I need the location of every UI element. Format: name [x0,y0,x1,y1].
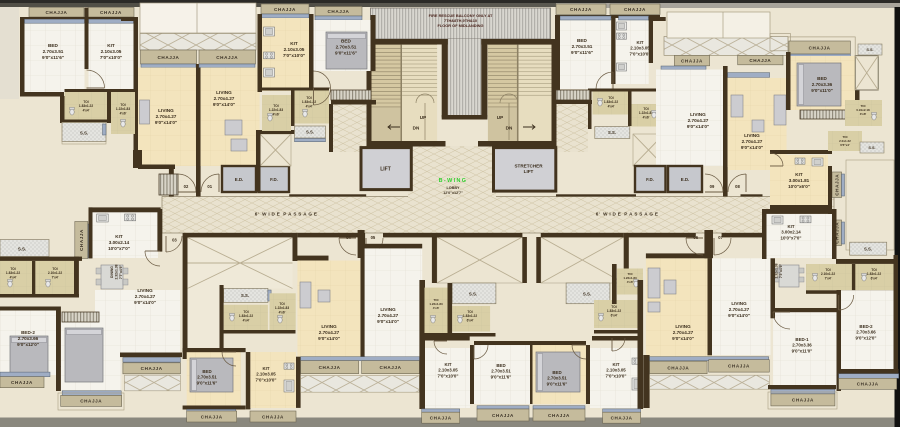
svg-text:7'0"x10'0": 7'0"x10'0" [630,51,651,56]
svg-text:S.S.: S.S. [608,130,616,135]
svg-text:2.70x3.51: 2.70x3.51 [336,45,357,50]
svg-text:LIVING: LIVING [321,324,337,329]
svg-text:4'x6': 4'x6' [643,115,650,119]
svg-text:2.70x4.27: 2.70x4.27 [673,330,694,335]
svg-text:BED: BED [577,38,588,43]
svg-text:STRETCHER: STRETCHER [514,164,543,169]
svg-text:2.70x3.36: 2.70x3.36 [812,82,833,87]
svg-text:S.S.: S.S. [868,146,875,150]
svg-text:2.70x4.27: 2.70x4.27 [156,114,177,119]
svg-text:CHAJJA: CHAJJA [141,366,163,371]
svg-text:CHAJJA: CHAJJA [667,365,689,370]
svg-text:4'x6': 4'x6' [433,306,440,310]
svg-text:08: 08 [735,184,740,189]
svg-text:2.70x4.27: 2.70x4.27 [729,307,750,312]
svg-text:CHAJJA: CHAJJA [158,55,180,60]
svg-text:CHAJJA: CHAJJA [792,398,814,403]
svg-text:9'0"x14'0": 9'0"x14'0" [134,300,156,305]
svg-text:9'0"x11'6": 9'0"x11'6" [491,374,512,379]
svg-text:3.00x2.14: 3.00x2.14 [109,240,130,245]
svg-text:CHAJJA: CHAJJA [492,413,514,418]
svg-text:4'x6': 4'x6' [273,112,280,116]
svg-text:LIVING: LIVING [380,307,396,312]
svg-text:S.S.: S.S. [469,292,477,297]
svg-text:2.70x4.27: 2.70x4.27 [742,139,763,144]
svg-text:9'0"x11'6": 9'0"x11'6" [197,380,218,385]
svg-text:CHAJJA: CHAJJA [80,399,102,404]
svg-text:2.10x3.05: 2.10x3.05 [606,368,626,373]
svg-text:B-WING: B-WING [439,178,468,184]
svg-text:4'x6': 4'x6' [627,280,634,284]
svg-text:S.S.: S.S. [241,293,249,298]
svg-text:2.70x4.27: 2.70x4.27 [688,118,709,123]
svg-text:KIT: KIT [612,362,619,367]
svg-text:2.10x3.05: 2.10x3.05 [284,47,305,52]
svg-text:LOBBY: LOBBY [447,186,460,190]
svg-text:KIT: KIT [107,43,115,48]
svg-text:9'0"x11'6": 9'0"x11'6" [42,55,64,60]
svg-text:CHAJJA: CHAJJA [100,10,122,15]
svg-text:BED: BED [48,43,59,48]
svg-text:2.70x3.66: 2.70x3.66 [18,336,39,341]
svg-text:2.70x3.51: 2.70x3.51 [197,375,217,380]
svg-text:CHAJJA: CHAJJA [611,416,633,421]
svg-text:LIFT: LIFT [524,169,534,174]
svg-text:9'0"x11'0": 9'0"x11'0" [792,348,813,353]
svg-text:7'0"x10'0": 7'0"x10'0" [283,53,305,58]
svg-text:3.00x1.81: 3.00x1.81 [789,178,810,183]
svg-text:E.D.: E.D. [235,177,244,182]
svg-text:2.10x3.05: 2.10x3.05 [256,372,276,377]
svg-text:LIVING: LIVING [690,112,706,117]
svg-text:07: 07 [718,235,723,240]
svg-text:CHAJJA: CHAJJA [681,58,703,63]
svg-text:S.S.: S.S. [80,131,88,136]
svg-text:BED-1: BED-1 [795,337,809,342]
svg-text:2.10x3.05: 2.10x3.05 [630,46,650,51]
svg-text:05: 05 [371,235,376,240]
svg-text:CHAJJA: CHAJJA [328,9,350,14]
svg-text:7'0"x10'0": 7'0"x10'0" [100,55,122,60]
svg-text:10'0"x7'0": 10'0"x7'0" [108,246,130,251]
svg-text:4'x4': 4'x4' [83,108,90,112]
svg-text:LIVING: LIVING [744,133,760,138]
svg-text:2.70x3.51: 2.70x3.51 [572,44,593,49]
svg-text:9'0"x11'6": 9'0"x11'6" [547,381,568,386]
svg-text:LIVING: LIVING [675,324,691,329]
svg-text:CHAJJA: CHAJJA [274,7,296,12]
svg-text:BED: BED [341,39,352,44]
svg-text:9'0"x14'0": 9'0"x14'0" [672,336,694,341]
svg-text:2.70x4.27: 2.70x4.27 [214,96,235,101]
svg-text:KIT: KIT [636,40,643,45]
svg-text:CHAJJA: CHAJJA [570,7,592,12]
svg-text:S.S.: S.S. [18,247,26,252]
svg-text:9'0"x14'0": 9'0"x14'0" [741,145,763,150]
svg-text:KIT: KIT [290,41,298,46]
svg-text:BED: BED [817,76,827,81]
svg-text:10'0"x7'0": 10'0"x7'0" [781,235,802,240]
svg-text:F.D.: F.D. [646,177,654,182]
svg-text:2.70x4.27: 2.70x4.27 [378,313,399,318]
svg-text:4'x6': 4'x6' [279,310,286,314]
svg-text:DN: DN [506,126,513,131]
svg-text:CHAJJA: CHAJJA [79,229,84,251]
svg-text:CHAJJA: CHAJJA [201,414,223,419]
svg-text:4'x6': 4'x6' [120,111,127,115]
svg-text:6'x4': 6'x4' [611,313,618,317]
svg-text:03: 03 [172,238,177,243]
svg-text:2.70x4.27: 2.70x4.27 [135,294,156,299]
svg-text:6' W I D E P A S S A G E: 6' W I D E P A S S A G E [255,212,318,217]
svg-text:KIT: KIT [787,224,794,229]
svg-text:LIVING: LIVING [216,90,232,95]
svg-text:CHAJJA: CHAJJA [430,416,452,421]
svg-text:KIT: KIT [444,362,451,367]
svg-text:CHAJJA: CHAJJA [46,10,68,15]
svg-text:DN: DN [413,126,420,131]
svg-text:BED: BED [202,369,211,374]
svg-text:BED: BED [552,370,561,375]
svg-text:CHAJJA: CHAJJA [548,413,570,418]
svg-text:9'0"x14'0": 9'0"x14'0" [728,313,750,318]
svg-text:9'0"x11'6": 9'0"x11'6" [571,50,593,55]
svg-text:BED-2: BED-2 [21,330,35,335]
svg-text:4'x4': 4'x4' [243,318,250,322]
svg-text:12'0"x12'7": 12'0"x12'7" [443,191,463,195]
svg-text:7'x4': 7'x4' [52,275,59,279]
svg-text:CHAJJA: CHAJJA [728,364,750,369]
svg-text:LIVING: LIVING [137,288,153,293]
svg-text:F.D.: F.D. [270,177,278,182]
svg-text:7'0"x10'0": 7'0"x10'0" [438,373,459,378]
svg-text:CHAJJA: CHAJJA [319,365,341,370]
svg-text:6'x4': 6'x4' [871,276,878,280]
svg-text:CHAJJA: CHAJJA [857,382,879,387]
svg-text:2.32x1.38: 2.32x1.38 [114,264,118,279]
svg-text:LIVING: LIVING [731,301,747,306]
svg-text:6' W I D E P A S S A G E: 6' W I D E P A S S A G E [596,212,659,217]
svg-text:CHAJJA: CHAJJA [624,7,646,12]
svg-text:7'0"x10'0": 7'0"x10'0" [606,373,627,378]
svg-text:9'0"x12'0": 9'0"x12'0" [17,342,39,347]
svg-text:9'0"x14'0": 9'0"x14'0" [213,102,235,107]
svg-text:3.00x2.14: 3.00x2.14 [781,230,801,235]
svg-text:2.10x3.05: 2.10x3.05 [101,49,122,54]
svg-text:04: 04 [346,235,351,240]
svg-text:2.10x3.05: 2.10x3.05 [438,368,458,373]
svg-text:4'x4': 4'x4' [10,275,17,279]
svg-text:CHAJJA: CHAJJA [380,365,402,370]
svg-text:7'7"x4'6": 7'7"x4'6" [119,264,123,279]
svg-text:CHAJJA: CHAJJA [749,58,771,63]
svg-text:3'x8': 3'x8' [860,112,867,116]
svg-text:UP: UP [420,115,426,120]
svg-text:E.D.: E.D. [681,177,690,182]
svg-text:KIT: KIT [115,234,123,239]
svg-text:CHAJJA: CHAJJA [216,55,238,60]
svg-text:CHAJJA: CHAJJA [835,174,840,196]
svg-text:2.70x3.51: 2.70x3.51 [43,49,64,54]
svg-text:01: 01 [207,184,212,189]
svg-text:KIT: KIT [795,172,803,177]
svg-text:9'0"x14'0": 9'0"x14'0" [687,124,709,129]
svg-text:BED-2: BED-2 [859,324,873,329]
svg-text:9'0"x11'0": 9'0"x11'0" [811,88,833,93]
svg-text:LIVING: LIVING [158,108,174,113]
svg-text:CHAJJA: CHAJJA [809,45,831,50]
svg-text:9'0"x14'0": 9'0"x14'0" [377,319,399,324]
svg-text:4'x4': 4'x4' [306,104,313,108]
svg-text:9'0"x14'0": 9'0"x14'0" [155,120,177,125]
svg-text:2.70x3.51: 2.70x3.51 [547,376,567,381]
svg-text:UP: UP [497,115,503,120]
svg-text:2.70x3.36: 2.70x3.36 [792,343,812,348]
svg-text:9'0"x12'0": 9'0"x12'0" [856,335,877,340]
svg-text:6'x4': 6'x4' [467,318,474,322]
svg-text:BED: BED [496,363,505,368]
svg-text:9'0"x11'6": 9'0"x11'6" [335,51,357,56]
svg-text:DINING: DINING [110,266,114,278]
svg-text:7'3"x4'6": 7'3"x4'6" [779,263,783,278]
svg-text:LIFT: LIFT [380,167,391,173]
svg-text:S.S.: S.S. [864,247,872,252]
svg-text:S.S.: S.S. [306,130,314,135]
svg-text:CHAJJA: CHAJJA [262,414,284,419]
svg-text:09: 09 [710,184,715,189]
svg-text:2.70x3.51: 2.70x3.51 [491,369,511,374]
svg-text:CHAJJA: CHAJJA [11,380,33,385]
svg-text:2.70x3.66: 2.70x3.66 [856,330,876,335]
svg-text:KIT: KIT [262,366,269,371]
svg-text:7'x4': 7'x4' [825,276,832,280]
svg-text:06: 06 [693,235,698,240]
svg-text:10'0"x6'0": 10'0"x6'0" [788,184,810,189]
svg-text:4'x4': 4'x4' [608,104,615,108]
svg-text:S.S.: S.S. [583,292,591,297]
svg-text:6'6"x4': 6'6"x4' [840,143,850,147]
svg-text:7'0"x10'0": 7'0"x10'0" [256,377,277,382]
svg-text:9'0"x14'0": 9'0"x14'0" [318,336,340,341]
svg-text:2.70x4.27: 2.70x4.27 [319,330,340,335]
svg-text:S.S.: S.S. [866,48,873,52]
svg-text:FLOOR OF MIDLANDING: FLOOR OF MIDLANDING [437,23,483,28]
svg-text:02: 02 [184,184,189,189]
